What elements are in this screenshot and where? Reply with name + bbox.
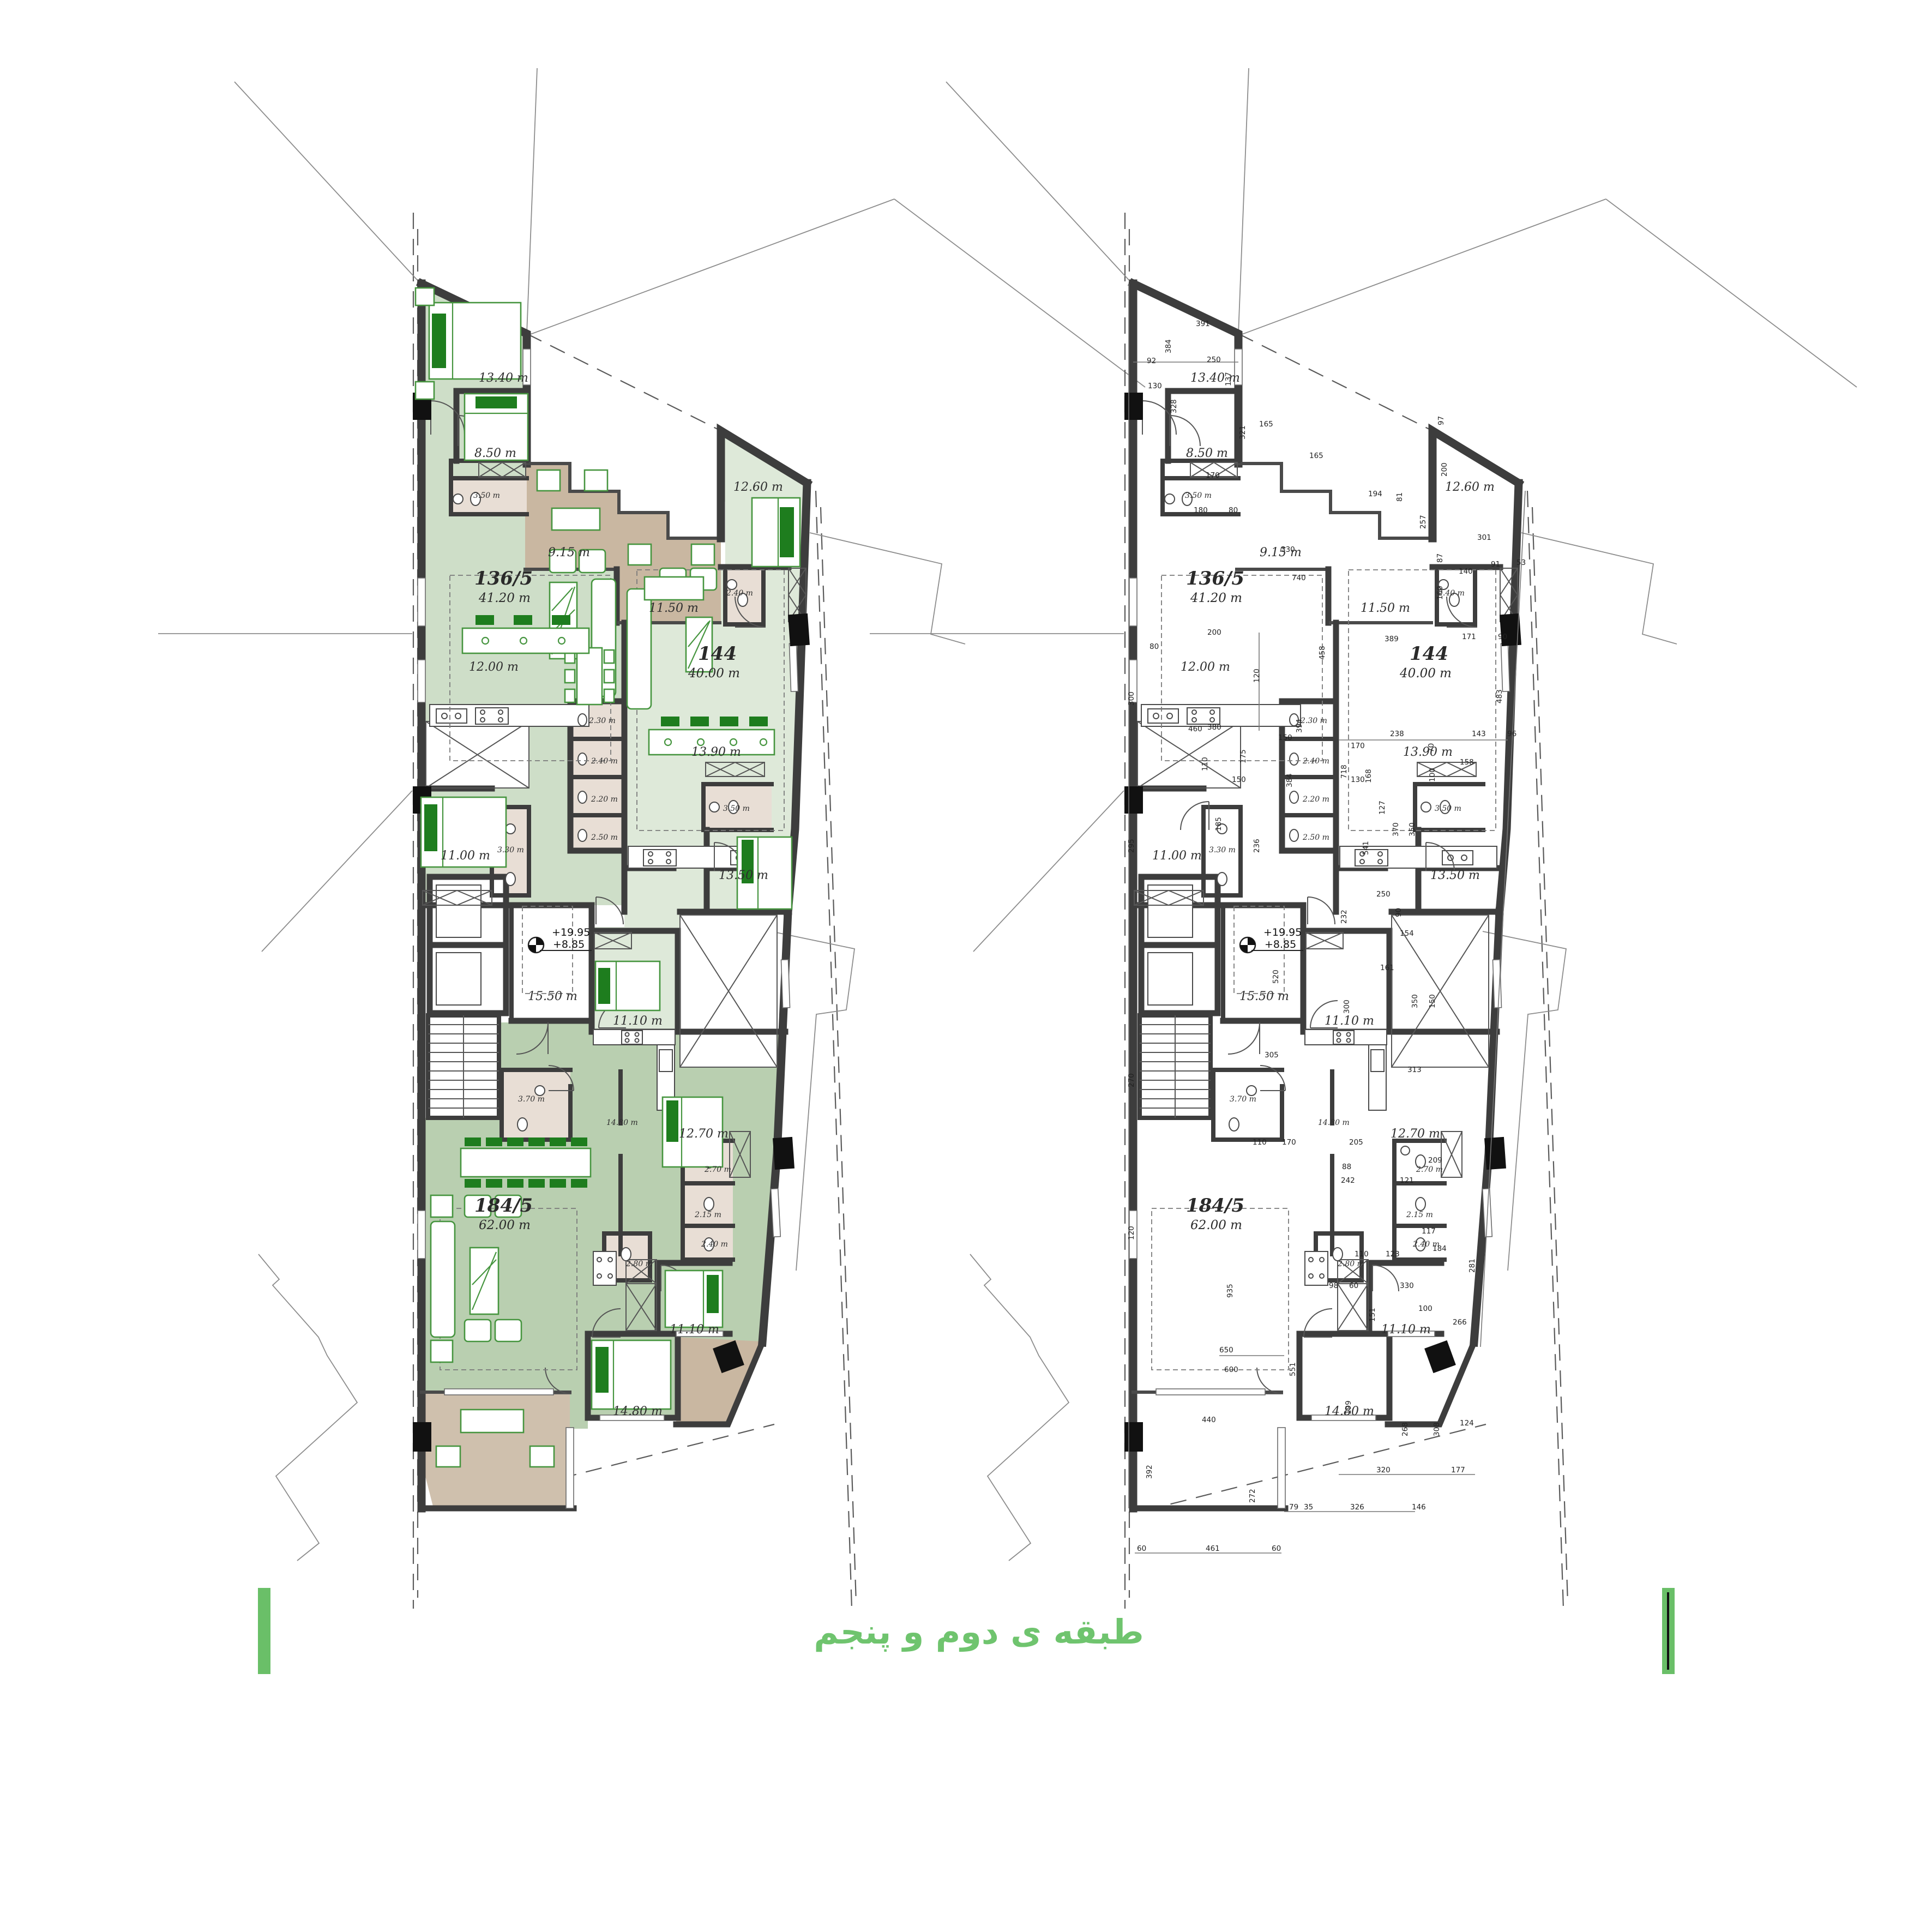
svg-text:165: 165 — [1309, 452, 1323, 460]
svg-text:384: 384 — [1285, 773, 1294, 787]
bed — [752, 498, 800, 567]
svg-text:87: 87 — [1436, 553, 1445, 563]
bed — [665, 1271, 723, 1327]
svg-text:392: 392 — [1145, 1465, 1154, 1479]
svg-text:320: 320 — [1376, 1466, 1391, 1474]
svg-text:313: 313 — [1407, 1066, 1422, 1074]
svg-text:461: 461 — [1206, 1544, 1220, 1553]
svg-text:175: 175 — [1239, 749, 1248, 763]
svg-text:79: 79 — [1289, 1503, 1298, 1512]
svg-text:935: 935 — [1226, 1284, 1235, 1298]
svg-text:150: 150 — [1428, 994, 1437, 1008]
svg-text:266: 266 — [1453, 1318, 1467, 1327]
svg-text:96: 96 — [1507, 730, 1516, 738]
svg-text:170: 170 — [1351, 742, 1365, 750]
svg-text:60: 60 — [1137, 1544, 1146, 1553]
svg-text:170: 170 — [1282, 1138, 1296, 1147]
svg-text:650: 650 — [1219, 1346, 1233, 1355]
svg-text:81: 81 — [1395, 492, 1404, 502]
svg-text:200: 200 — [1440, 462, 1449, 477]
svg-text:150: 150 — [1278, 733, 1292, 742]
svg-text:154: 154 — [1400, 929, 1414, 938]
svg-text:165: 165 — [1259, 420, 1273, 429]
svg-text:130: 130 — [1148, 382, 1162, 390]
svg-text:458: 458 — [1318, 646, 1327, 660]
svg-text:124: 124 — [1460, 1419, 1474, 1428]
svg-text:90: 90 — [1498, 633, 1507, 641]
plan-dimensioned: 391 384 92 130 250 328 137 165 165 170 1… — [870, 68, 1857, 1609]
svg-text:121: 121 — [1400, 1176, 1414, 1185]
svg-text:53: 53 — [1516, 558, 1526, 567]
svg-text:130: 130 — [1351, 775, 1365, 784]
svg-text:541: 541 — [1362, 841, 1370, 855]
svg-text:330: 330 — [1400, 1281, 1414, 1290]
svg-text:120: 120 — [1127, 1226, 1136, 1240]
svg-text:90: 90 — [1394, 908, 1403, 917]
svg-text:151: 151 — [1368, 1308, 1377, 1322]
svg-text:127: 127 — [1378, 801, 1387, 815]
svg-text:209: 209 — [1428, 1156, 1442, 1165]
svg-text:236: 236 — [1253, 839, 1261, 853]
bed — [595, 961, 660, 1010]
svg-text:123: 123 — [1386, 1250, 1400, 1259]
svg-text:440: 440 — [1202, 1416, 1216, 1424]
svg-text:60: 60 — [1272, 1544, 1281, 1553]
svg-text:300: 300 — [1343, 1000, 1351, 1014]
svg-text:180: 180 — [1194, 506, 1208, 515]
svg-text:380: 380 — [1207, 723, 1221, 732]
svg-text:328: 328 — [1170, 399, 1178, 413]
svg-text:551: 551 — [1289, 1362, 1297, 1376]
svg-text:158: 158 — [1460, 758, 1474, 767]
svg-text:250: 250 — [1207, 356, 1221, 364]
svg-text:308: 308 — [1433, 1422, 1441, 1436]
svg-text:98: 98 — [1329, 1281, 1338, 1290]
svg-text:483: 483 — [1495, 689, 1504, 703]
svg-text:35: 35 — [1304, 1503, 1313, 1512]
svg-text:268: 268 — [1401, 1422, 1410, 1436]
svg-text:185: 185 — [1214, 817, 1223, 831]
svg-text:460: 460 — [1188, 725, 1202, 733]
bed — [592, 1340, 671, 1409]
svg-text:100: 100 — [1418, 1304, 1433, 1313]
svg-text:205: 205 — [1349, 1138, 1363, 1147]
svg-text:170: 170 — [1206, 471, 1220, 480]
svg-text:718: 718 — [1340, 765, 1349, 779]
svg-text:257: 257 — [1419, 515, 1428, 529]
svg-text:97: 97 — [1437, 416, 1446, 425]
floor-title: طبقه ی دوم و پنجم — [793, 1612, 1164, 1652]
svg-text:60: 60 — [1349, 1281, 1358, 1290]
svg-text:194: 194 — [1368, 490, 1382, 498]
svg-text:300: 300 — [1127, 691, 1136, 706]
svg-text:389: 389 — [1385, 635, 1399, 643]
svg-text:177: 177 — [1451, 1466, 1465, 1474]
svg-text:80: 80 — [1149, 642, 1159, 651]
svg-text:100: 100 — [1428, 768, 1437, 782]
svg-text:272: 272 — [1248, 1489, 1257, 1503]
svg-text:391: 391 — [1196, 320, 1210, 328]
svg-text:281: 281 — [1468, 1259, 1477, 1273]
svg-text:232: 232 — [1340, 910, 1349, 924]
svg-text:740: 740 — [1292, 574, 1306, 582]
svg-text:171: 171 — [1462, 633, 1476, 641]
svg-text:270: 270 — [1127, 1073, 1136, 1087]
svg-text:350: 350 — [1411, 994, 1419, 1008]
svg-text:370: 370 — [1392, 822, 1400, 836]
svg-text:200: 200 — [1207, 628, 1221, 637]
svg-text:110: 110 — [1253, 1138, 1267, 1147]
svg-text:250: 250 — [1376, 890, 1391, 899]
svg-text:117: 117 — [1422, 1227, 1436, 1236]
svg-text:92: 92 — [1147, 357, 1156, 365]
svg-text:321: 321 — [1238, 425, 1247, 440]
svg-text:350: 350 — [1408, 822, 1417, 836]
dining-table — [565, 648, 614, 705]
svg-text:80: 80 — [1229, 506, 1238, 515]
svg-text:305: 305 — [1265, 1051, 1279, 1060]
svg-text:120: 120 — [1253, 669, 1261, 683]
svg-text:326: 326 — [1350, 1503, 1364, 1512]
svg-text:110: 110 — [1355, 1250, 1369, 1259]
kitchen-island — [462, 615, 589, 653]
svg-text:301: 301 — [1477, 533, 1491, 542]
svg-text:295: 295 — [1127, 839, 1136, 853]
svg-text:91: 91 — [1491, 560, 1500, 569]
svg-text:140: 140 — [1459, 567, 1473, 576]
svg-text:520: 520 — [1272, 970, 1280, 984]
plan-colored — [158, 68, 1145, 1609]
scale-bar-right — [1662, 1588, 1675, 1674]
svg-text:384: 384 — [1164, 339, 1173, 353]
svg-text:143: 143 — [1472, 730, 1486, 738]
svg-text:88: 88 — [1342, 1163, 1351, 1171]
svg-text:146: 146 — [1412, 1503, 1426, 1512]
svg-text:242: 242 — [1341, 1176, 1355, 1185]
svg-text:150: 150 — [1232, 775, 1246, 784]
svg-text:161: 161 — [1380, 964, 1394, 972]
scale-bar-left — [258, 1588, 270, 1674]
svg-text:238: 238 — [1390, 730, 1404, 738]
svg-text:600: 600 — [1224, 1365, 1238, 1374]
svg-text:110: 110 — [1201, 757, 1209, 771]
svg-text:168: 168 — [1364, 769, 1373, 783]
